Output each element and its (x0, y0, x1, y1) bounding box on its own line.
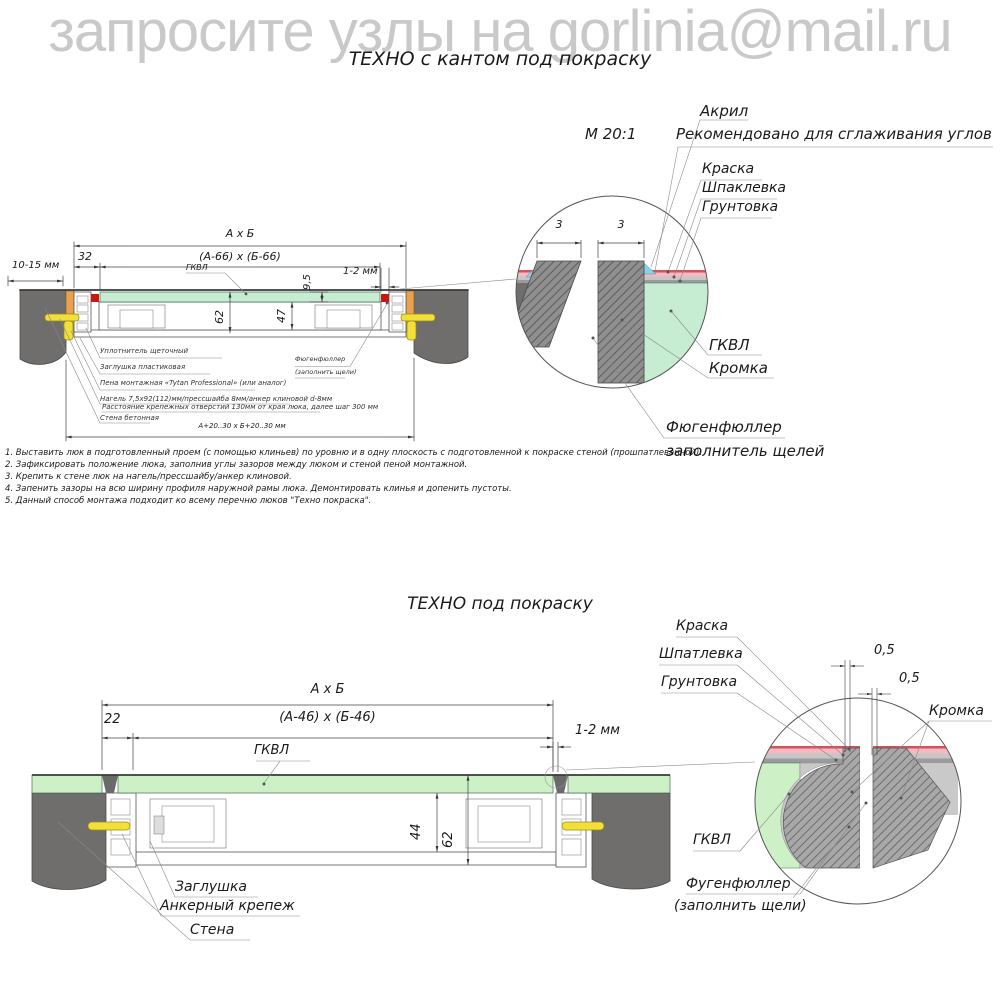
bottom-callout-primer: Грунтовка (661, 675, 737, 691)
top-dim-32: 32 (78, 251, 92, 263)
top-dim-47: 47 (276, 309, 288, 323)
top-dim-1-2: 1-2 мм (343, 266, 378, 277)
top-dim-10-15: 10-15 мм (12, 260, 59, 271)
bottom-callout-filler-line1: Фугенфюллер (686, 877, 791, 893)
callout-gkvl-detail: ГКВЛ (709, 337, 750, 354)
callout-acryl-note: Рекомендовано для сглаживания углов (676, 126, 992, 143)
bottom-label-anchor: Анкерный крепеж (160, 899, 295, 915)
bottom-dim-inner: (А-46) х (Б-46) (102, 711, 553, 726)
bottom-dim-05-b: 0,5 (899, 672, 920, 687)
top-dim-opening: А+20..30 х Б+20..30 мм (70, 423, 414, 431)
bottom-dim-axb: А х Б (102, 683, 553, 698)
top-label-seal: Уплотнитель щеточный (100, 348, 188, 356)
detail-dim-3-left: 3 (549, 219, 569, 231)
top-dim-inner: (А-66) х (Б-66) (100, 251, 380, 263)
bottom-dim-44: 44 (410, 823, 425, 840)
bottom-callout-edge: Кромка (929, 704, 984, 720)
detail-dim-3-right: 3 (611, 219, 631, 231)
top-label-wall: Стена бетонная (100, 415, 159, 423)
top-label-spacing: Расстояние крепежных отверстий 130мм от … (102, 404, 378, 412)
callout-filler-line1: Фюгенфюллер (666, 419, 782, 436)
top-dim-9-5: 9,5 (302, 274, 313, 290)
top-label-gkvl: ГКВЛ (186, 264, 208, 273)
bottom-label-plug: Заглушка (175, 880, 247, 896)
bottom-callout-gkvl: ГКВЛ (693, 833, 731, 849)
callout-putty: Шпаклевка (702, 181, 786, 197)
callout-paint: Краска (702, 162, 754, 178)
top-title: ТЕХНО с кантом под покраску (0, 49, 1000, 70)
top-label-filler-line2: (заполнить щели) (295, 369, 357, 376)
note-5: 5. Данный способ монтажа подходит ко все… (5, 497, 371, 507)
top-dim-axb: А х Б (74, 228, 406, 240)
top-label-filler-line1: Фюгенфюллер (295, 356, 345, 363)
top-label-foam: Пена монтажная «Tytan Professional» (или… (100, 380, 286, 388)
top-dim-62: 62 (214, 310, 226, 324)
callout-edge-detail: Кромка (709, 360, 768, 377)
bottom-dim-05-a: 0,5 (874, 644, 895, 659)
bottom-title: ТЕХНО под покраску (0, 595, 1000, 614)
bottom-label-gkvl: ГКВЛ (254, 744, 289, 759)
note-4: 4. Запенить зазоры на всю ширину профиля… (5, 485, 512, 495)
detail-scale-label: М 20:1 (585, 126, 636, 143)
bottom-callout-filler-line2: (заполнить щели) (674, 899, 807, 915)
bottom-dim-1-2: 1-2 мм (575, 724, 620, 739)
callout-acryl: Акрил (700, 103, 748, 120)
top-label-plug: Заглушка пластиковая (100, 364, 185, 372)
bottom-callout-paint: Краска (676, 619, 728, 635)
bottom-callout-putty: Шпатлевка (659, 647, 743, 663)
callout-primer: Грунтовка (702, 200, 778, 216)
drawing-sheet: запросите узлы на gorlinia@mail.ru ТЕХНО… (0, 0, 1000, 1000)
note-1: 1. Выставить люк в подготовленный проем … (5, 449, 702, 459)
note-3: 3. Крепить к стене люк на нагель/прессша… (5, 473, 292, 483)
note-2: 2. Зафиксировать положение люка, заполни… (5, 461, 467, 471)
bottom-dim-22: 22 (104, 713, 121, 728)
bottom-dim-62: 62 (442, 831, 457, 848)
bottom-label-wall: Стена (190, 923, 234, 939)
bottom-section-drawing (32, 700, 755, 940)
